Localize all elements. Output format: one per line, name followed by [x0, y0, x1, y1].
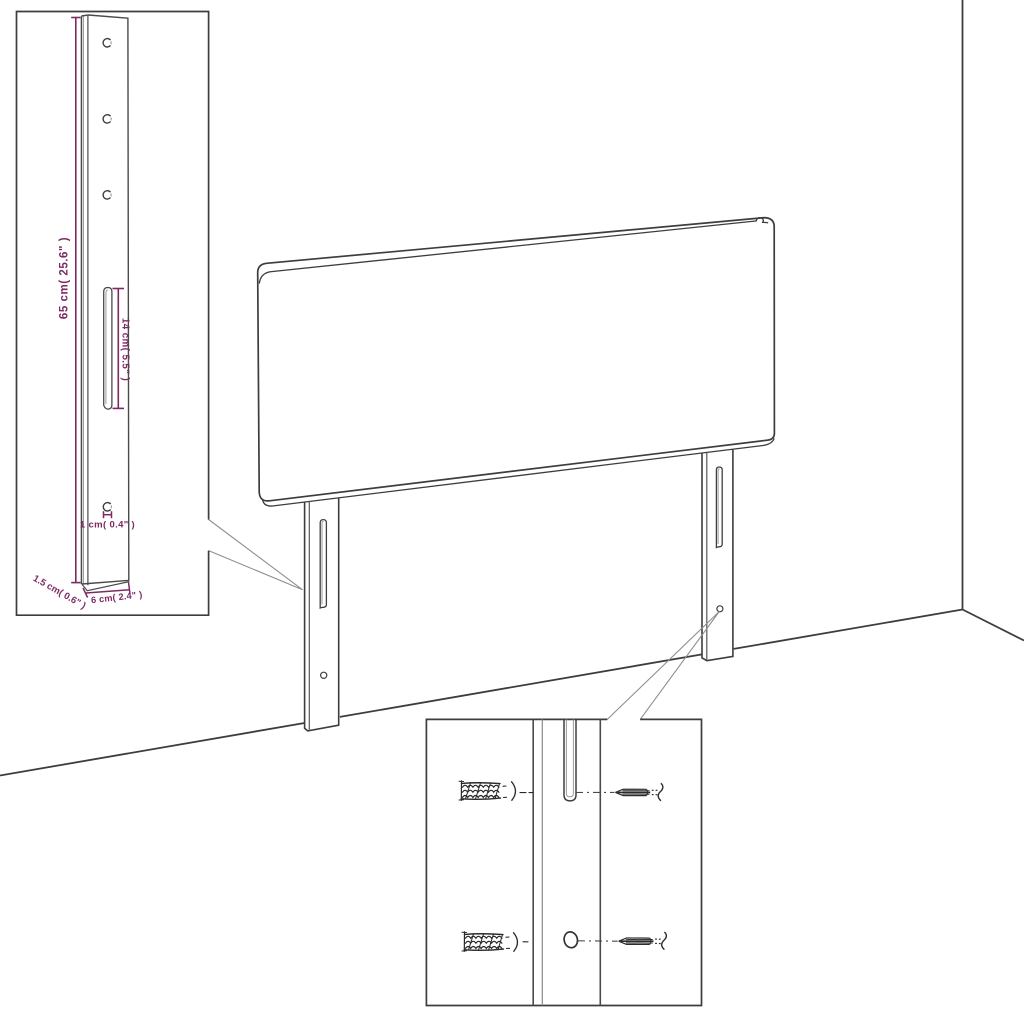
- svg-text:1.5 cm( 0.6" ): 1.5 cm( 0.6" ): [31, 573, 88, 612]
- svg-text:14 cm( 5.5" ): 14 cm( 5.5" ): [120, 318, 131, 381]
- svg-text:1 cm( 0.4" ): 1 cm( 0.4" ): [80, 520, 135, 531]
- svg-text:65 cm( 25.6" ): 65 cm( 25.6" ): [59, 237, 71, 319]
